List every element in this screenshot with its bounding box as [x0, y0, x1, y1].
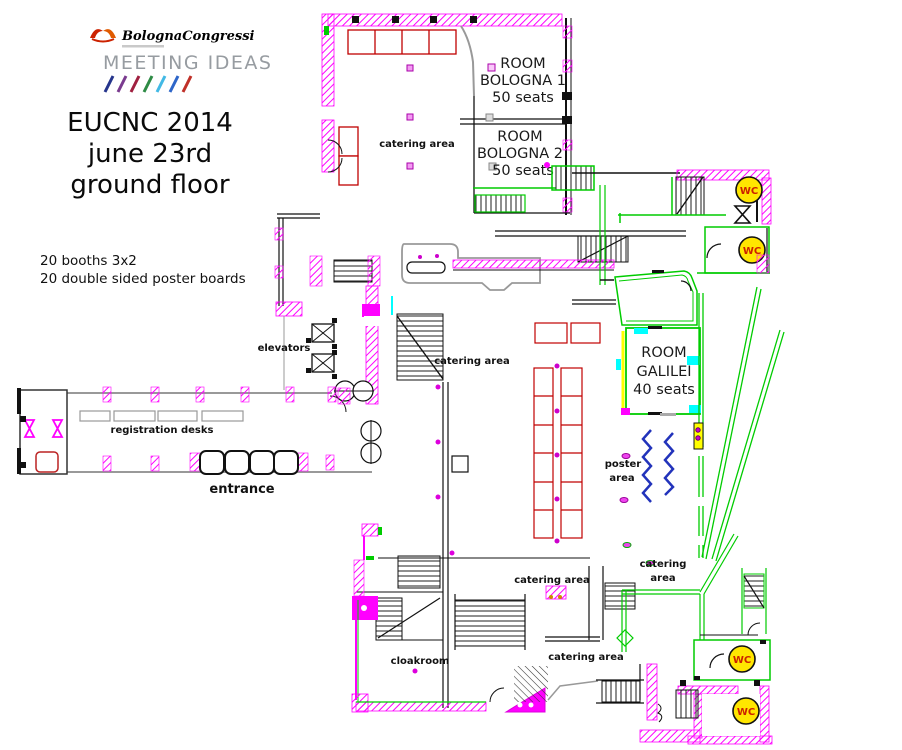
room-galilei-capacity: 40 seats	[633, 382, 695, 398]
room-bologna1-name1: ROOM	[500, 56, 545, 72]
entrance-doors	[200, 451, 298, 474]
door-symbol	[735, 206, 750, 223]
room-galilei: ROOM GALILEI 40 seats	[600, 270, 701, 416]
room-bologna1-capacity: 50 seats	[492, 90, 554, 106]
cloakroom-block: cloakroom catering area catering area	[352, 556, 635, 712]
catering-label-right-1: catering	[640, 559, 687, 570]
catering-label-right-2: area	[650, 573, 675, 584]
rooms-bologna: ROOM BOLOGNA 1 50 seats ROOM BOLOGNA 2 5…	[460, 18, 594, 215]
svg-text:WC: WC	[733, 655, 751, 666]
floor-plan: catering area ROOM BOLOGNA 1 50 seats RO…	[0, 0, 902, 750]
stairs-bottom-2	[676, 690, 698, 718]
stairs-lobby	[334, 260, 372, 282]
elevators-label: elevators	[258, 343, 311, 354]
wc-badge-1: WC	[736, 177, 762, 203]
room-bologna1-name2: BOLOGNA 1	[480, 73, 566, 89]
poster-area-label-1: poster	[605, 459, 642, 470]
stairs-bottom	[602, 681, 640, 702]
stairs-cloakroom-a	[398, 556, 440, 588]
entrance-vestibule	[17, 388, 67, 474]
entrance-label: entrance	[209, 482, 274, 497]
entrance-corridor: registration desks entrance	[17, 387, 372, 497]
top-catering-hall: catering area	[322, 14, 562, 213]
catering-tables	[339, 30, 456, 185]
room-galilei-name2: GALILEI	[636, 364, 691, 380]
registration-desks	[80, 411, 243, 421]
room-galilei-name1: ROOM	[641, 345, 686, 361]
catering-area-label-bottom: catering area	[548, 652, 624, 663]
catering-area-label-mid: catering area	[434, 356, 510, 367]
stairs-diagonal	[514, 666, 548, 702]
catering-area-label-top: catering area	[379, 139, 455, 150]
wc-badge-4: WC	[733, 698, 759, 724]
poster-area: poster area	[605, 430, 673, 566]
elevator-cars	[306, 318, 337, 379]
floor-plan-page: BolognaCongressi MEETING IDEAS EUCNC 201…	[0, 0, 902, 750]
stairs-east	[605, 583, 635, 609]
stairs-cloakroom-b	[376, 598, 402, 640]
cloakroom-label: cloakroom	[391, 656, 450, 667]
poster-boards-row	[643, 430, 651, 502]
central-bar-counter	[402, 185, 769, 304]
right-perimeter	[694, 287, 784, 561]
poster-area-label-2: area	[609, 473, 634, 484]
svg-text:WC: WC	[737, 707, 755, 718]
room-bologna2-name1: ROOM	[497, 129, 542, 145]
svg-text:WC: WC	[740, 186, 758, 197]
catering-area-label-bottom-mid: catering area	[514, 575, 590, 586]
registration-desks-label: registration desks	[111, 425, 214, 436]
revolving-door-2	[361, 420, 381, 464]
wc-badge-3: WC	[729, 646, 755, 672]
stairs-wide	[455, 600, 525, 646]
room-bologna2-name2: BOLOGNA 2	[477, 146, 563, 162]
poster-boards-row	[665, 433, 673, 495]
